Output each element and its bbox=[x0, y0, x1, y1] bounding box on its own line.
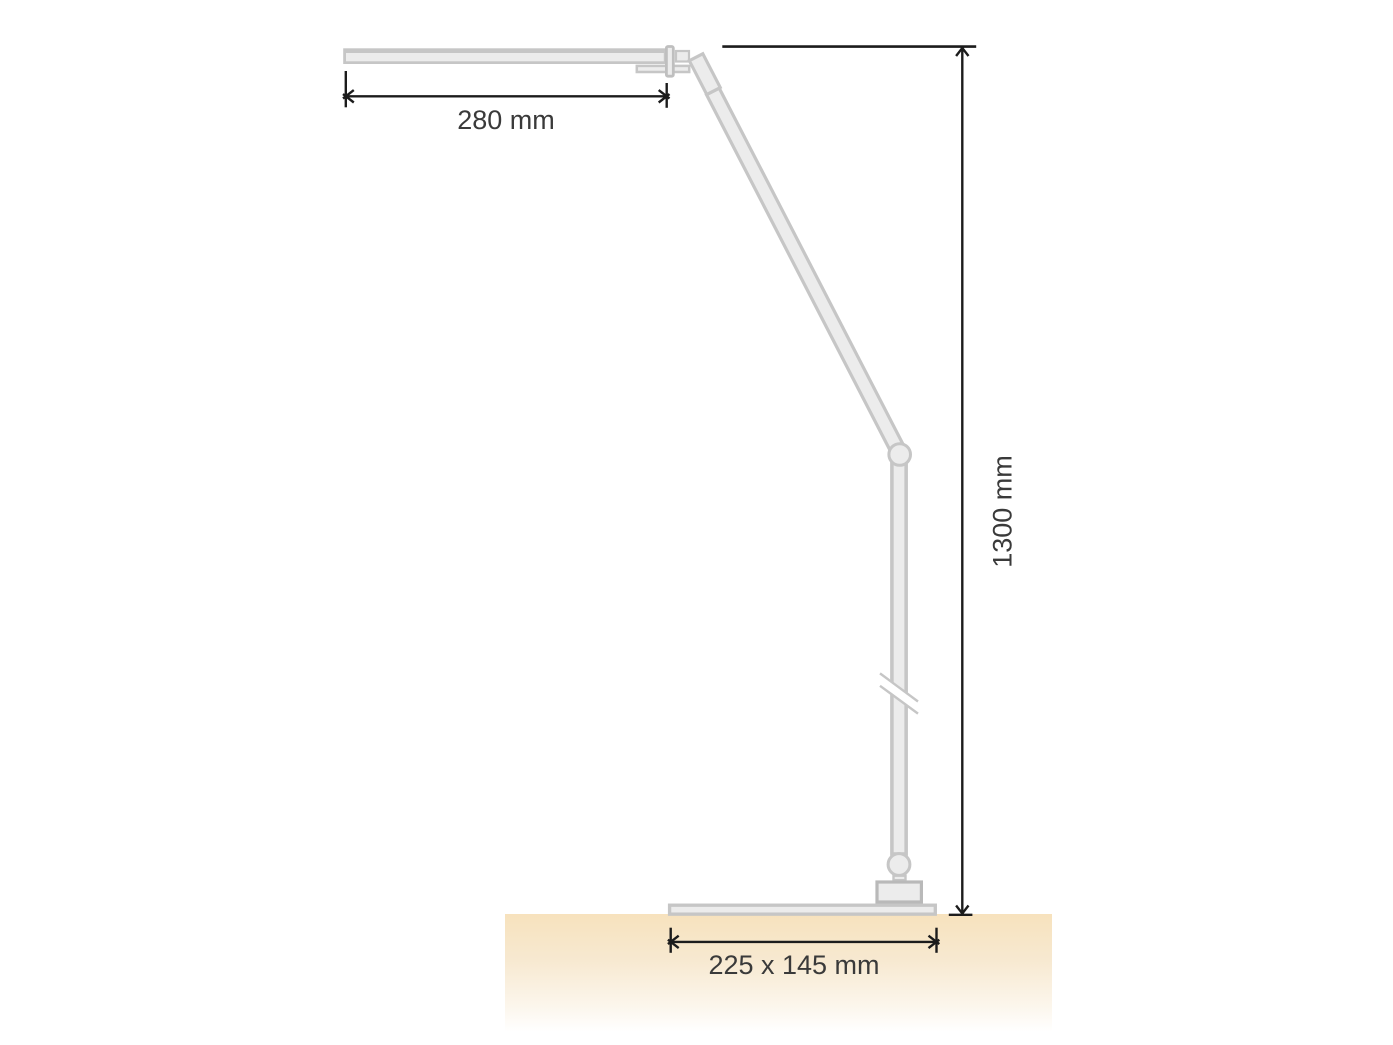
svg-text:225 x 145 mm: 225 x 145 mm bbox=[708, 950, 879, 980]
svg-text:280 mm: 280 mm bbox=[457, 105, 555, 135]
svg-text:1300 mm: 1300 mm bbox=[988, 455, 1018, 568]
